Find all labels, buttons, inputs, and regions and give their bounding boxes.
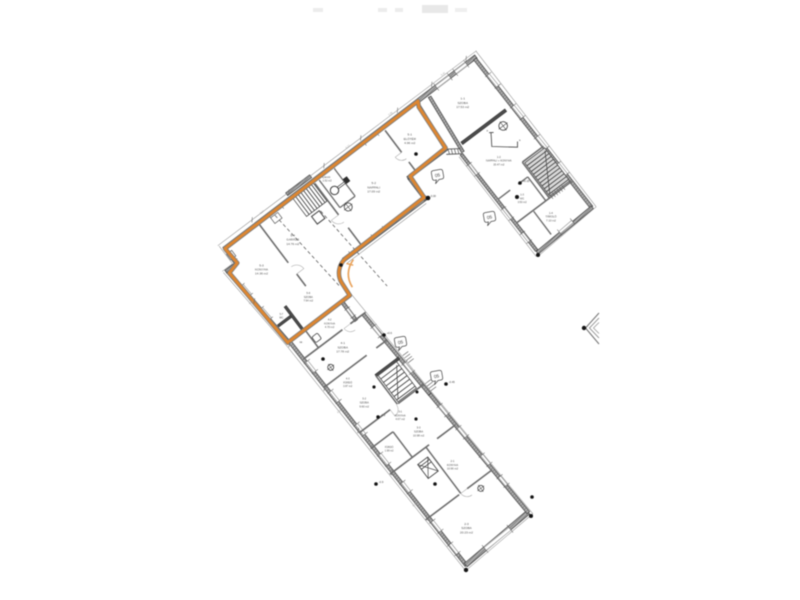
svg-text:-0.9: -0.9 xyxy=(379,480,384,484)
svg-text:-0.45: -0.45 xyxy=(449,380,455,384)
svg-text:5-7WC: 5-7WC xyxy=(279,313,283,320)
svg-text:0.00: 0.00 xyxy=(431,194,437,198)
svg-text:FÜRDŐ1.98 m2: FÜRDŐ1.98 m2 xyxy=(385,446,394,453)
svg-text:+0.15: +0.15 xyxy=(523,179,530,183)
svg-text:-1.2: -1.2 xyxy=(381,413,386,417)
svg-text:tár.: tár. xyxy=(300,341,304,344)
svg-text:+0.6: +0.6 xyxy=(387,331,393,335)
